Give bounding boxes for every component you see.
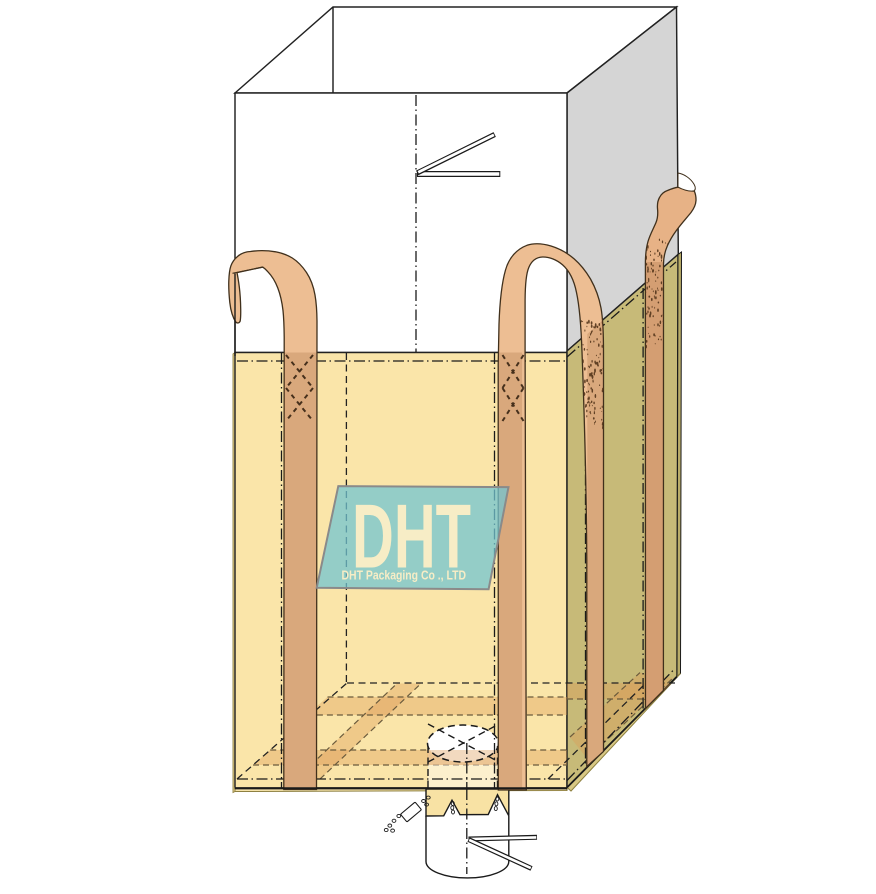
svg-text:DHT Packaging Co ., LTD: DHT Packaging Co ., LTD [342,567,467,582]
